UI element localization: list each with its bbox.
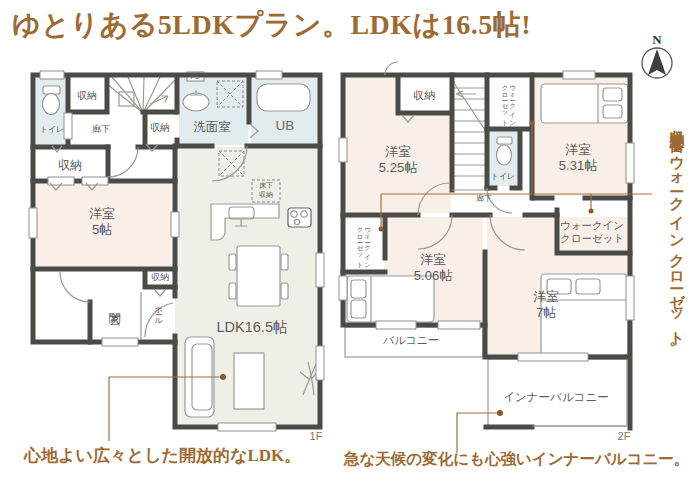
inner-balcony-outline — [488, 359, 627, 426]
dining-table-icon — [229, 246, 288, 306]
bed-icon-7 — [541, 274, 628, 355]
stove-icon — [288, 208, 311, 227]
caption-walk-in-closet: 収納豊富なウォークインクローゼット。 — [667, 118, 686, 357]
floorplan-page: ゆとりある5LDKプラン。LDKは16.5帖! N トイレ 収納 廊下 収納 P… — [0, 0, 700, 485]
toilet-icon-1f — [43, 86, 61, 115]
page-title: ゆとりある5LDKプラン。LDKは16.5帖! — [12, 6, 531, 44]
floorplan-graphics — [0, 0, 700, 485]
toilet-icon-2f — [497, 137, 513, 165]
balcony-outline — [345, 327, 483, 357]
stairs-2f-icon — [452, 80, 487, 176]
stairs-1f-icon — [107, 77, 175, 113]
caption-inner-balcony: 急な天候の変化にも心強いインナーバルコニー。 — [344, 449, 689, 470]
bed-icon-506 — [347, 276, 434, 322]
bathtub-icon — [257, 84, 310, 111]
caption-ldk: 心地よい広々とした開放的なLDK。 — [24, 444, 301, 467]
bed-icon-531 — [541, 84, 628, 123]
compass-icon — [642, 48, 672, 78]
coffee-table-icon — [234, 353, 264, 409]
